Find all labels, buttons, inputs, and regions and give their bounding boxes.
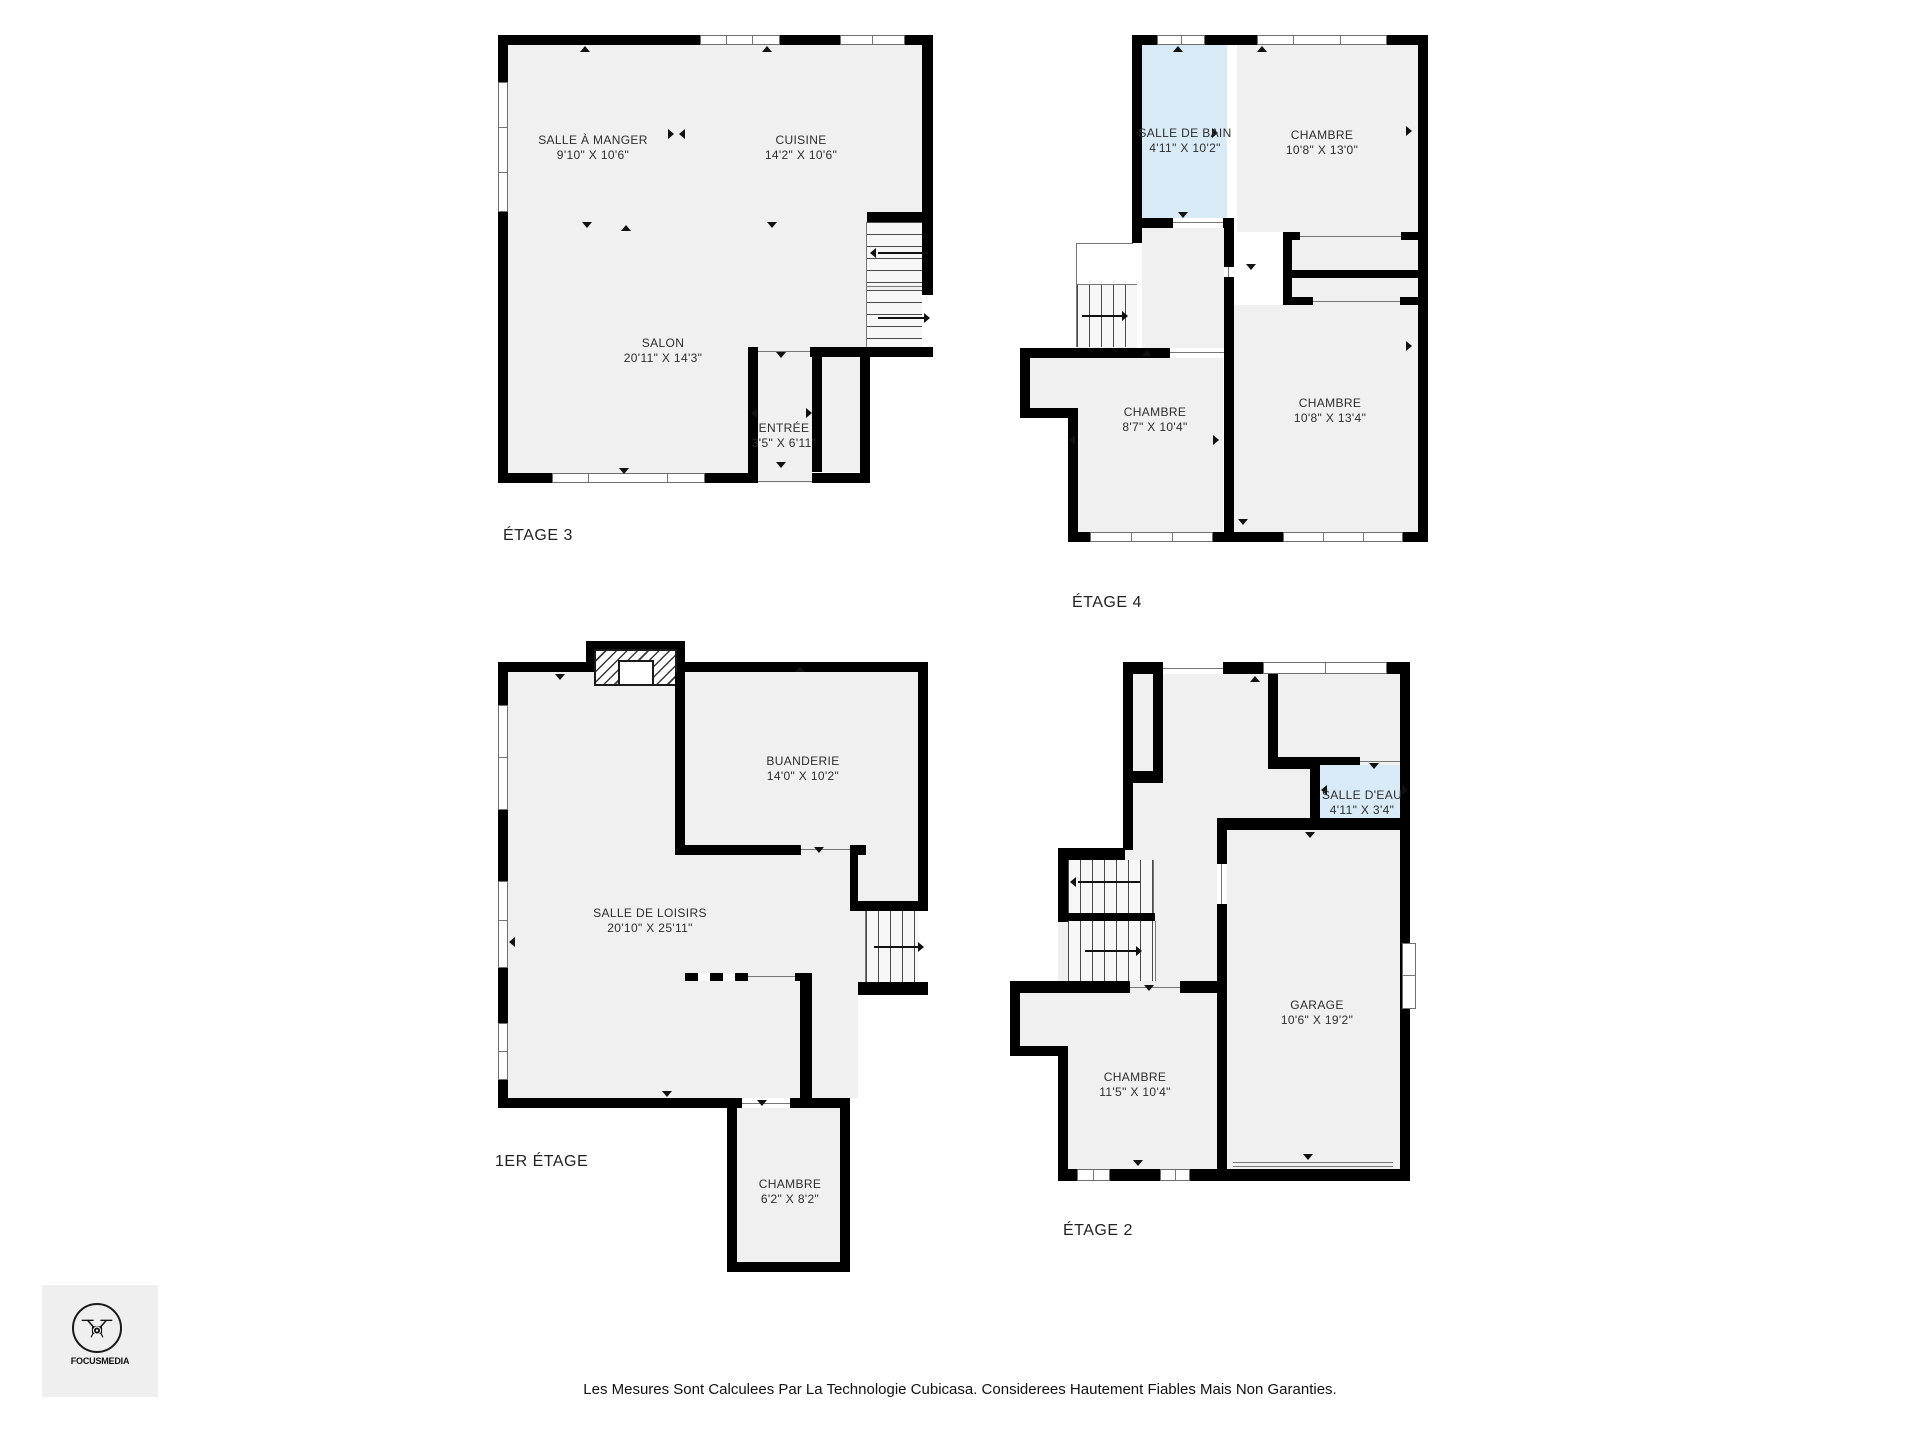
stair-edge [865, 911, 866, 982]
wall [867, 212, 933, 222]
wall [1190, 1169, 1410, 1181]
window-mullion [588, 474, 589, 482]
door-marker [1069, 435, 1075, 445]
wall [1283, 232, 1292, 305]
door-marker [621, 225, 631, 231]
wall [1403, 532, 1428, 542]
arrow-head-icon [1070, 877, 1076, 887]
wall [1224, 228, 1234, 267]
room-name: SALLE D'EAU [1322, 788, 1402, 803]
door-opening [1163, 668, 1223, 669]
wall [1133, 771, 1163, 783]
door-marker [1369, 763, 1379, 769]
wall [922, 35, 933, 295]
half-wall [685, 973, 748, 981]
room-name: CHAMBRE [1122, 405, 1187, 420]
wall [1010, 981, 1020, 1056]
disclaimer-text: Les Mesures Sont Calculees Par La Techno… [0, 1381, 1920, 1398]
door-marker [619, 468, 629, 474]
floor-area [1078, 358, 1223, 532]
door-marker [1305, 832, 1315, 838]
wall [1180, 981, 1217, 993]
window-mullion [1175, 1170, 1176, 1180]
door-marker [1246, 264, 1256, 270]
stair-edge [1077, 284, 1137, 285]
door-marker [1142, 350, 1152, 356]
window-mullion [499, 757, 507, 758]
room-name: SALON [624, 336, 703, 351]
wall [850, 901, 928, 911]
wall [1020, 358, 1030, 408]
window-mullion [752, 36, 753, 44]
room-name: GARAGE [1281, 998, 1353, 1013]
chimney-wall [586, 641, 685, 649]
stair-direction-arrow [1082, 315, 1124, 317]
room-dims: 6'2" X 8'2" [759, 1192, 821, 1207]
wall [1401, 232, 1418, 240]
wall [1153, 674, 1163, 773]
window-mullion [1181, 36, 1182, 44]
window [700, 35, 780, 45]
stair-direction-arrow [1085, 950, 1138, 952]
room-dims: 9'10" X 10'6" [538, 148, 648, 163]
door-marker [767, 222, 777, 228]
room-dims: 20'10" X 25'11" [593, 921, 707, 936]
wall [812, 357, 822, 472]
wall [1278, 757, 1310, 769]
floorplan-canvas: SALLE À MANGER 9'10" X 10'6" CUISINE 14'… [0, 0, 1920, 1440]
room-label-cuisine: CUISINE 14'2" X 10'6" [765, 133, 837, 163]
wall [498, 1098, 742, 1108]
wall [498, 35, 700, 45]
drone-icon [80, 1316, 114, 1340]
wall [727, 1108, 737, 1272]
floor-area [1142, 228, 1224, 348]
room-dims: 3'5" X 6'11" [752, 436, 816, 451]
wall [860, 357, 870, 482]
door-marker [555, 674, 565, 680]
room-name: SALLE DE BAIN [1138, 126, 1231, 141]
wall [498, 473, 552, 483]
wall [1292, 297, 1313, 305]
room-dims: 4'11" X 10'2" [1138, 141, 1231, 156]
wall [1058, 913, 1155, 921]
wall [918, 662, 928, 911]
room-label-salle-de-loisirs: SALLE DE LOISIRS 20'10" X 25'11" [593, 906, 707, 936]
door-marker [1144, 985, 1154, 991]
arrow-head-icon [1122, 311, 1128, 321]
door-marker [1238, 519, 1248, 525]
door-marker [662, 1091, 672, 1097]
door-marker [1303, 1154, 1313, 1160]
room-label-salon: SALON 20'11" X 14'3" [624, 336, 703, 366]
room-label-salle-a-manger: SALLE À MANGER 9'10" X 10'6" [538, 133, 648, 163]
wall [1217, 830, 1227, 864]
window-mullion [667, 474, 668, 482]
wall [498, 662, 508, 705]
wall [1123, 662, 1163, 674]
floor-label-etage-2: ÉTAGE 2 [1063, 1222, 1133, 1240]
stair-divider [867, 286, 922, 287]
door-marker [1133, 1160, 1143, 1166]
floor-label-etage-3: ÉTAGE 3 [503, 527, 573, 545]
floor-area [822, 357, 860, 472]
opening-line [748, 976, 795, 977]
door-marker [1257, 46, 1267, 52]
door-marker [509, 937, 515, 947]
garage-door-line [1233, 1166, 1393, 1167]
door-marker [1250, 676, 1260, 682]
wall [1205, 35, 1257, 45]
door-marker [1178, 212, 1188, 218]
stair-edge [866, 222, 867, 347]
window-mullion [1340, 36, 1341, 44]
wall [1400, 662, 1410, 1181]
wall [1058, 848, 1125, 860]
window-mullion [1131, 533, 1132, 541]
room-name: CHAMBRE [1294, 396, 1366, 411]
arrow-head-icon [1136, 946, 1142, 956]
door-marker [814, 847, 824, 853]
window-mullion [872, 36, 873, 44]
arrow-head-icon [918, 942, 924, 952]
floor-area [1292, 232, 1418, 305]
window-mullion [726, 36, 727, 44]
door-marker [776, 352, 786, 358]
stair-direction-arrow [878, 252, 928, 254]
wall [498, 212, 508, 483]
wall [1123, 674, 1133, 850]
door-opening [1360, 761, 1400, 762]
wall [1223, 218, 1234, 228]
wall [675, 845, 801, 855]
window-mullion [1323, 533, 1324, 541]
window [1090, 532, 1213, 542]
door-marker [795, 666, 805, 672]
wall [812, 473, 870, 483]
closet-line [1313, 301, 1400, 302]
room-name: ENTRÉE [752, 421, 816, 436]
room-dims: 8'7" X 10'4" [1122, 420, 1187, 435]
arrow-head-icon [924, 313, 930, 323]
window-mullion [1325, 663, 1326, 673]
wall [498, 810, 508, 881]
wall [840, 1103, 850, 1272]
wall [1213, 532, 1283, 542]
wall [1217, 904, 1227, 1181]
floor-area [1030, 358, 1078, 408]
door-opening [1228, 267, 1229, 277]
room-name: SALLE DE LOISIRS [593, 906, 707, 921]
wall [498, 968, 508, 1023]
boundary-line [1076, 243, 1077, 285]
wall [1068, 532, 1090, 542]
room-label-chambre-2: CHAMBRE 8'7" X 10'4" [1122, 405, 1187, 435]
firebox [618, 660, 654, 686]
door-marker [668, 129, 674, 139]
wall [1010, 1046, 1068, 1056]
room-label-buanderie: BUANDERIE 14'0" X 10'2" [766, 754, 839, 784]
door-marker [679, 129, 685, 139]
stair-edge [1155, 921, 1156, 981]
window-mullion [499, 920, 507, 921]
door-marker [1173, 46, 1183, 52]
door-marker [1402, 785, 1408, 795]
room-dims: 14'0" X 10'2" [766, 769, 839, 784]
wall [675, 672, 685, 845]
wall [1418, 45, 1428, 542]
room-dims: 11'5" X 10'4" [1099, 1085, 1170, 1100]
chimney-wall [677, 641, 685, 672]
wall [1132, 35, 1157, 45]
door-marker [776, 462, 786, 468]
window-mullion [1293, 36, 1294, 44]
wall [1292, 270, 1428, 278]
stair-edge [1076, 285, 1077, 347]
door-opening [1173, 222, 1223, 223]
staircase [1068, 860, 1153, 913]
wall [800, 973, 812, 1108]
boundary-line [1076, 243, 1133, 244]
room-dims: 20'11" X 14'3" [624, 351, 703, 366]
room-label-garage: GARAGE 10'6" X 19'2" [1281, 998, 1353, 1028]
wall [498, 662, 586, 672]
wall [1400, 297, 1418, 305]
window-mullion [1363, 533, 1364, 541]
brand-name: FOCUSMEDIA [42, 1356, 158, 1366]
wall [1142, 218, 1173, 228]
window [552, 473, 705, 483]
window [498, 881, 508, 968]
stair-edge [1153, 860, 1154, 913]
window-mullion [1403, 975, 1415, 976]
room-name: CHAMBRE [1286, 128, 1358, 143]
floor-area [1020, 993, 1068, 1046]
room-label-chambre-1: CHAMBRE 10'8" X 13'0" [1286, 128, 1358, 158]
window-mullion [499, 127, 507, 128]
room-label-salle-deau: SALLE D'EAU 4'11" X 3'4" [1322, 788, 1402, 818]
wall [1020, 408, 1078, 418]
wall [1010, 981, 1130, 993]
wall [727, 1262, 850, 1272]
room-name: SALLE À MANGER [538, 133, 648, 148]
room-dims: 14'2" X 10'6" [765, 148, 837, 163]
room-label-salle-de-bain: SALLE DE BAIN 4'11" X 10'2" [1138, 126, 1231, 156]
stair-direction-arrow [1078, 881, 1140, 883]
room-name: BUANDERIE [766, 754, 839, 769]
floor-label-etage-4: ÉTAGE 4 [1072, 594, 1142, 612]
door-opening [1221, 864, 1222, 904]
wall [498, 45, 508, 82]
wall [1268, 674, 1278, 769]
door-marker [1406, 341, 1412, 351]
wall [1224, 277, 1234, 532]
room-label-entree: ENTRÉE 3'5" X 6'11" [752, 421, 816, 451]
stair-direction-arrow [878, 317, 926, 319]
wall [1223, 662, 1263, 674]
door-marker [580, 46, 590, 52]
window-mullion [1172, 533, 1173, 541]
window [1257, 35, 1387, 45]
window [1283, 532, 1403, 542]
door-marker [582, 222, 592, 228]
wall [1217, 818, 1410, 830]
window-mullion [499, 172, 507, 173]
door-marker [751, 408, 757, 418]
wall [1058, 1056, 1068, 1169]
room-dims: 10'6" X 19'2" [1281, 1013, 1353, 1028]
stair-direction-arrow [874, 946, 920, 948]
door-marker [1406, 126, 1412, 136]
wall [1058, 848, 1068, 922]
door-marker [757, 1100, 767, 1106]
room-name: CHAMBRE [1099, 1070, 1170, 1085]
room-label-chambre-etage2: CHAMBRE 11'5" X 10'4" [1099, 1070, 1170, 1100]
door-marker [806, 408, 812, 418]
room-label-chambre-3: CHAMBRE 10'8" X 13'4" [1294, 396, 1366, 426]
door-opening [801, 849, 850, 850]
door-marker [762, 46, 772, 52]
closet-line [1300, 236, 1401, 237]
room-name: CHAMBRE [759, 1177, 821, 1192]
wall [1110, 1169, 1160, 1181]
wall [685, 662, 928, 672]
door-opening [758, 481, 812, 482]
arrow-head-icon [870, 248, 876, 258]
wall [1387, 35, 1428, 45]
wall [780, 35, 840, 45]
logo-circle [72, 1303, 122, 1353]
window-mullion [499, 1051, 507, 1052]
room-dims: 10'8" X 13'0" [1286, 143, 1358, 158]
window [1402, 943, 1416, 1009]
door-opening [1170, 352, 1224, 353]
door-opening [1130, 987, 1180, 988]
floor-area [508, 45, 922, 347]
room-label-chambre-1er: CHAMBRE 6'2" X 8'2" [759, 1177, 821, 1207]
room-dims: 4'11" X 3'4" [1322, 803, 1402, 818]
window [498, 82, 508, 212]
floor-label-1er-etage: 1ER ÉTAGE [495, 1153, 588, 1171]
chimney-wall [586, 641, 594, 672]
wall [810, 347, 933, 357]
room-dims: 10'8" X 13'4" [1294, 411, 1366, 426]
wall [1320, 757, 1360, 765]
room-name: CUISINE [765, 133, 837, 148]
wall [858, 982, 928, 995]
wall [1058, 1169, 1077, 1181]
door-marker [1213, 435, 1219, 445]
floor-area [1133, 818, 1217, 848]
window-mullion [1093, 1170, 1094, 1180]
garage-door-line [1233, 1162, 1393, 1163]
